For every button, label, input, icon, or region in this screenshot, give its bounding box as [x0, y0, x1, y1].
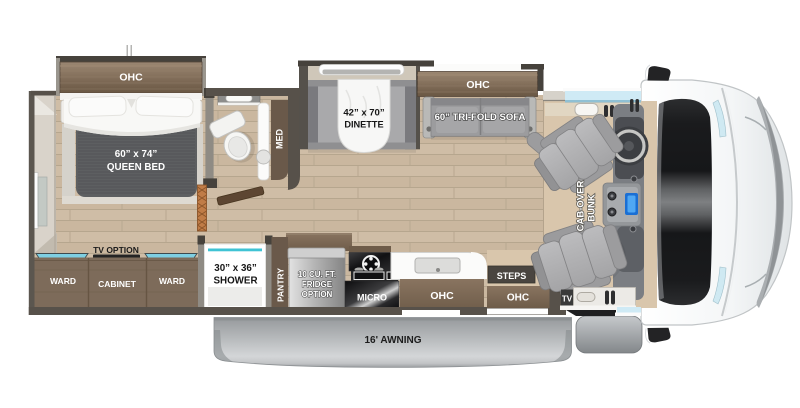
svg-text:TV OPTION: TV OPTION	[93, 245, 139, 255]
svg-text:BUNK: BUNK	[587, 194, 598, 222]
svg-text:OPTION: OPTION	[302, 290, 333, 299]
svg-text:STEPS: STEPS	[497, 271, 527, 281]
svg-text:60” TRI-FOLD SOFA: 60” TRI-FOLD SOFA	[435, 112, 526, 123]
svg-text:DINETTE: DINETTE	[344, 120, 383, 130]
svg-text:OHC: OHC	[119, 72, 143, 84]
svg-text:60” x 74”: 60” x 74”	[115, 149, 158, 160]
svg-text:OHC: OHC	[466, 79, 490, 91]
svg-text:SHOWER: SHOWER	[213, 276, 257, 287]
svg-text:CABINET: CABINET	[98, 279, 137, 289]
svg-text:OHC: OHC	[430, 290, 454, 302]
svg-text:WARD: WARD	[50, 276, 76, 286]
svg-text:16' AWNING: 16' AWNING	[364, 335, 421, 346]
svg-text:MED: MED	[275, 129, 285, 150]
svg-text:42” x 70”: 42” x 70”	[343, 108, 384, 119]
svg-text:WARD: WARD	[159, 276, 185, 286]
svg-text:TV: TV	[562, 295, 573, 304]
svg-text:FRIDGE: FRIDGE	[302, 280, 333, 289]
svg-text:30” x 36”: 30” x 36”	[214, 263, 257, 274]
svg-text:OHC: OHC	[507, 293, 529, 304]
svg-text:MICRO: MICRO	[357, 293, 387, 303]
svg-text:PANTRY: PANTRY	[276, 268, 286, 302]
svg-text:10 CU. FT.: 10 CU. FT.	[298, 270, 336, 279]
svg-text:CAB-OVER: CAB-OVER	[576, 181, 587, 232]
svg-text:QUEEN BED: QUEEN BED	[107, 162, 165, 173]
